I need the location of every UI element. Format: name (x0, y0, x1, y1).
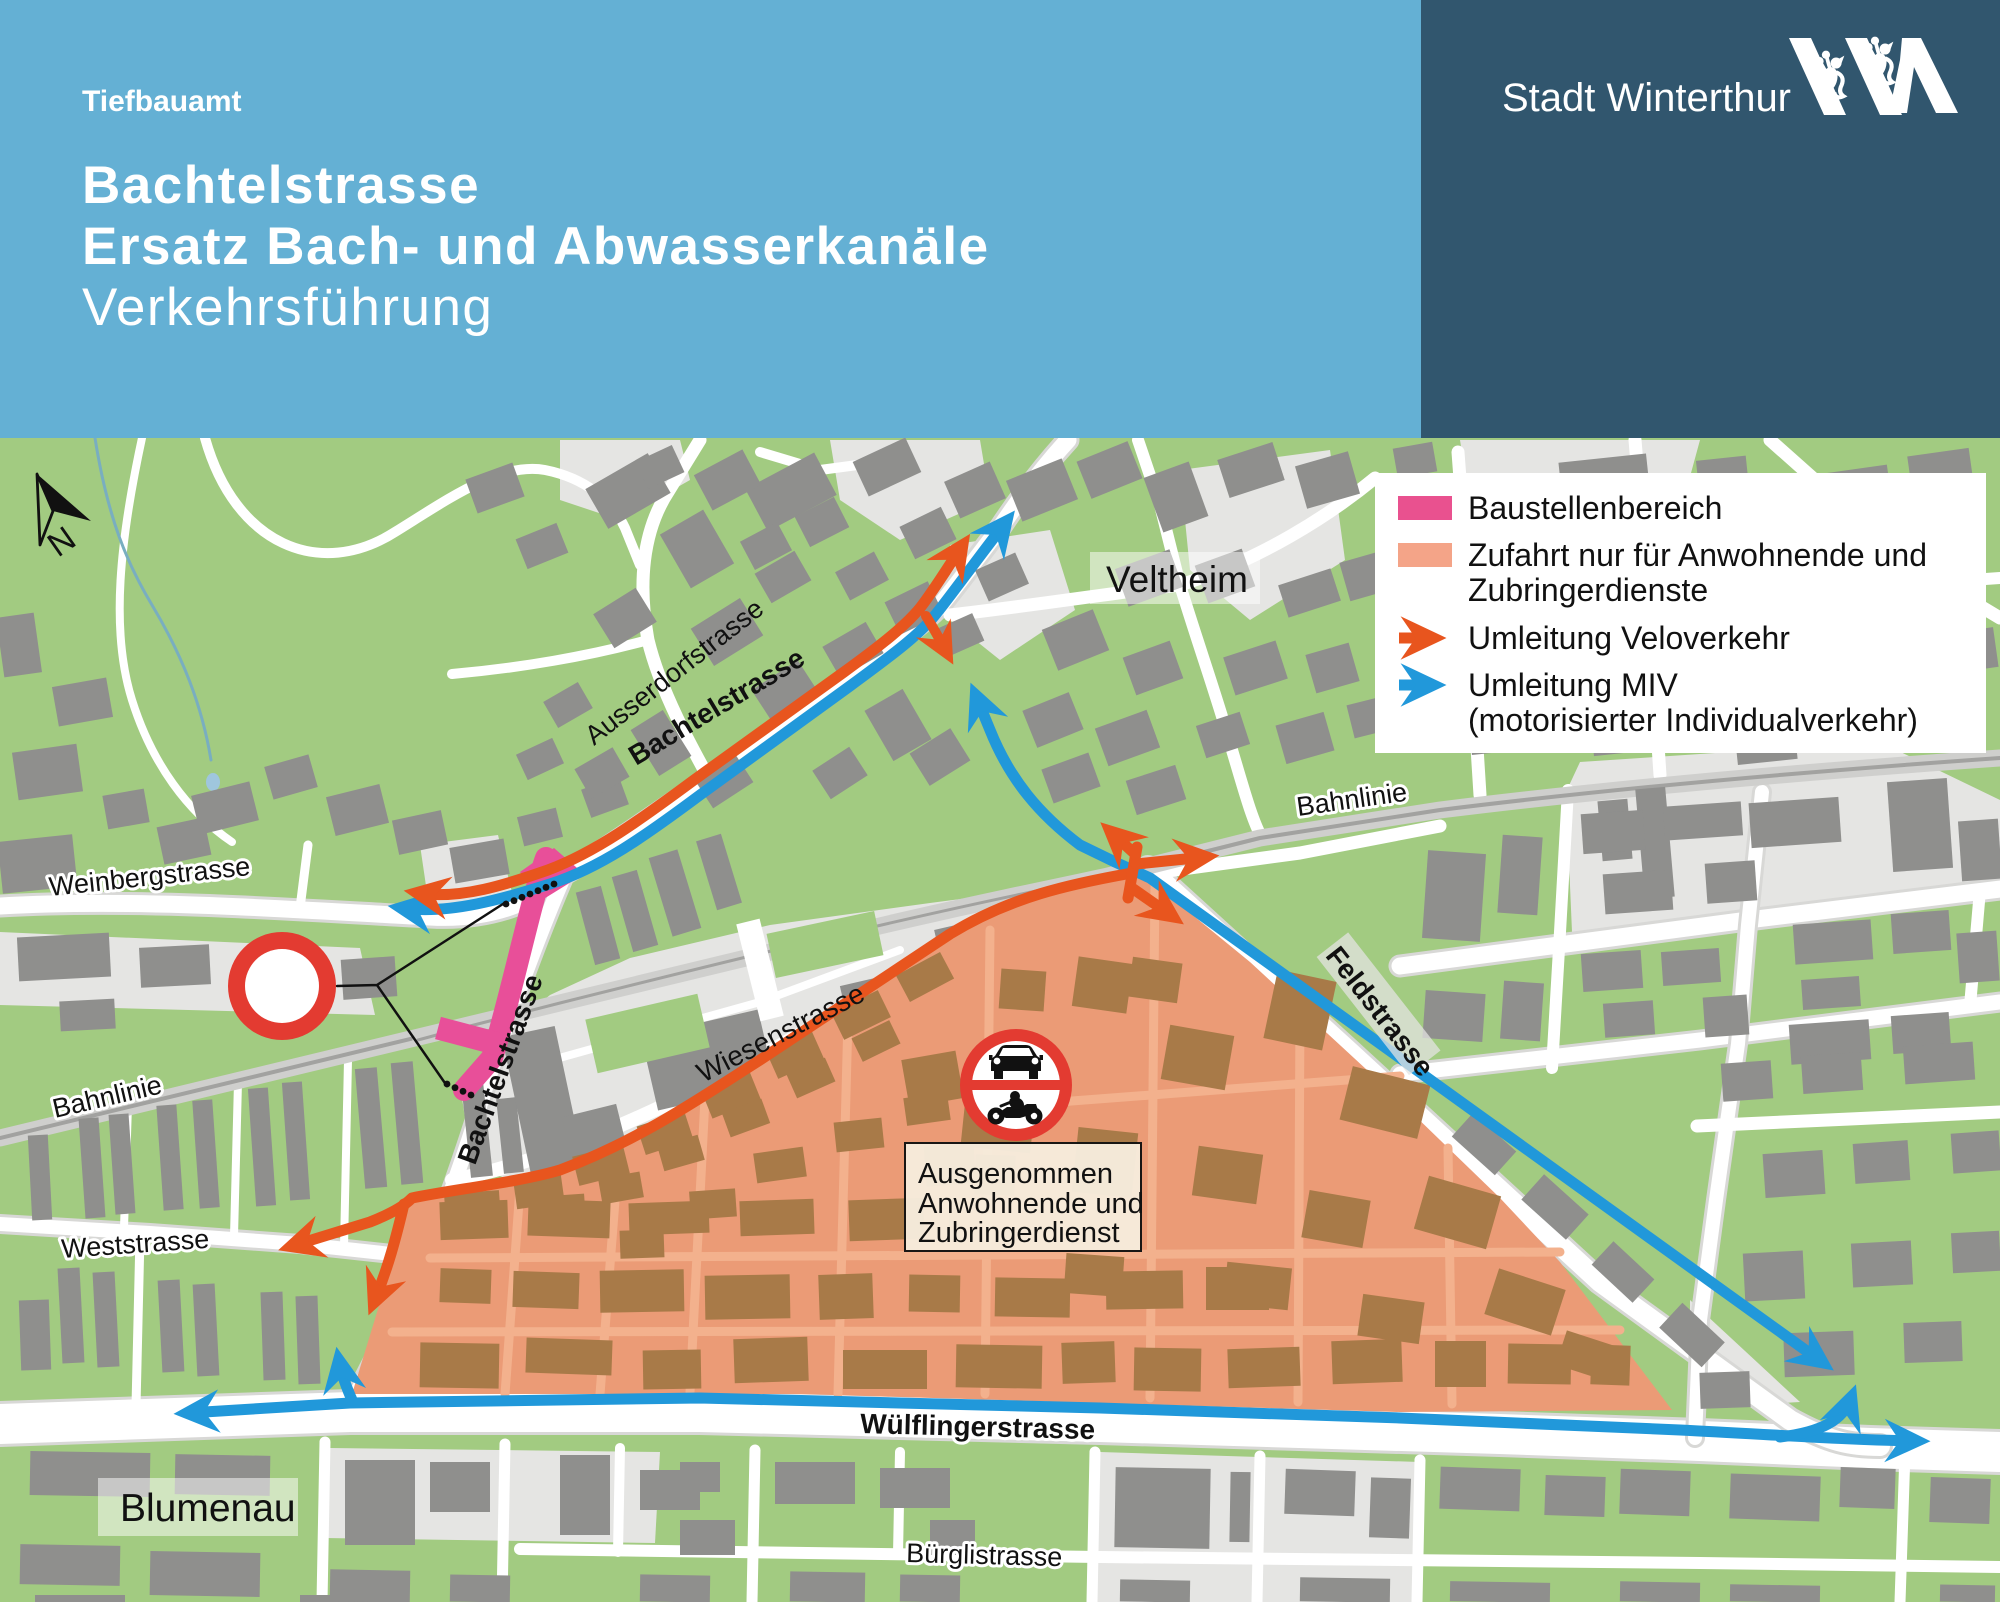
svg-text:Baustellenbereich: Baustellenbereich (1468, 490, 1722, 526)
svg-text:Zubringerdienst: Zubringerdienst (918, 1217, 1120, 1249)
svg-text:Wülflingerstrasse: Wülflingerstrasse (860, 1408, 1096, 1445)
svg-text:Umleitung Veloverkehr: Umleitung Veloverkehr (1468, 620, 1790, 656)
svg-text:Umleitung MIV: Umleitung MIV (1468, 667, 1679, 703)
svg-text:Blumenau: Blumenau (120, 1487, 296, 1530)
svg-text:Anwohnende und: Anwohnende und (918, 1188, 1144, 1220)
svg-text:Bürglistrasse: Bürglistrasse (906, 1538, 1063, 1572)
svg-text:Zubringerdienste: Zubringerdienste (1468, 572, 1708, 608)
svg-text:(motorisierter Individualverke: (motorisierter Individualverkehr) (1468, 702, 1918, 738)
svg-text:Veltheim: Veltheim (1106, 559, 1248, 600)
svg-text:Ausgenommen: Ausgenommen (918, 1158, 1113, 1190)
svg-text:Zufahrt nur für Anwohnende und: Zufahrt nur für Anwohnende und (1468, 537, 1927, 573)
